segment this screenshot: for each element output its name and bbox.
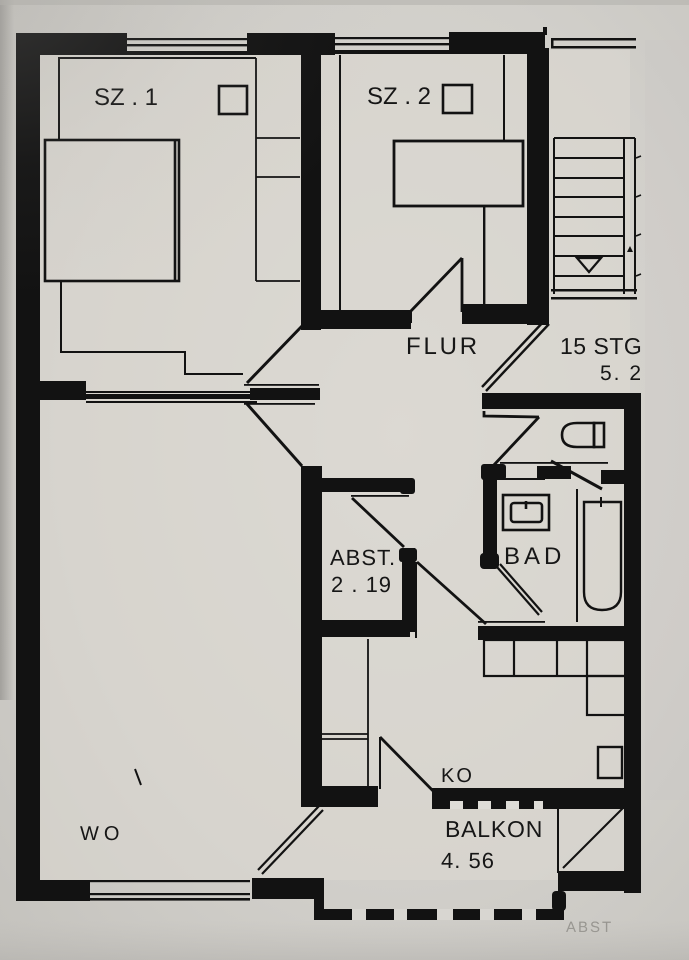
svg-text:5. 2: 5. 2 [600, 362, 643, 385]
svg-text:ABST.: ABST. [330, 545, 396, 570]
svg-text:2 . 19: 2 . 19 [331, 572, 392, 597]
svg-text:BAD: BAD [504, 543, 565, 570]
svg-text:KO: KO [441, 765, 474, 787]
svg-text:4. 56: 4. 56 [441, 848, 495, 873]
svg-text:FLUR: FLUR [406, 333, 480, 360]
svg-text:WO: WO [80, 823, 124, 845]
svg-text:15 STG: 15 STG [560, 333, 642, 359]
svg-text:BALKON: BALKON [445, 816, 543, 842]
